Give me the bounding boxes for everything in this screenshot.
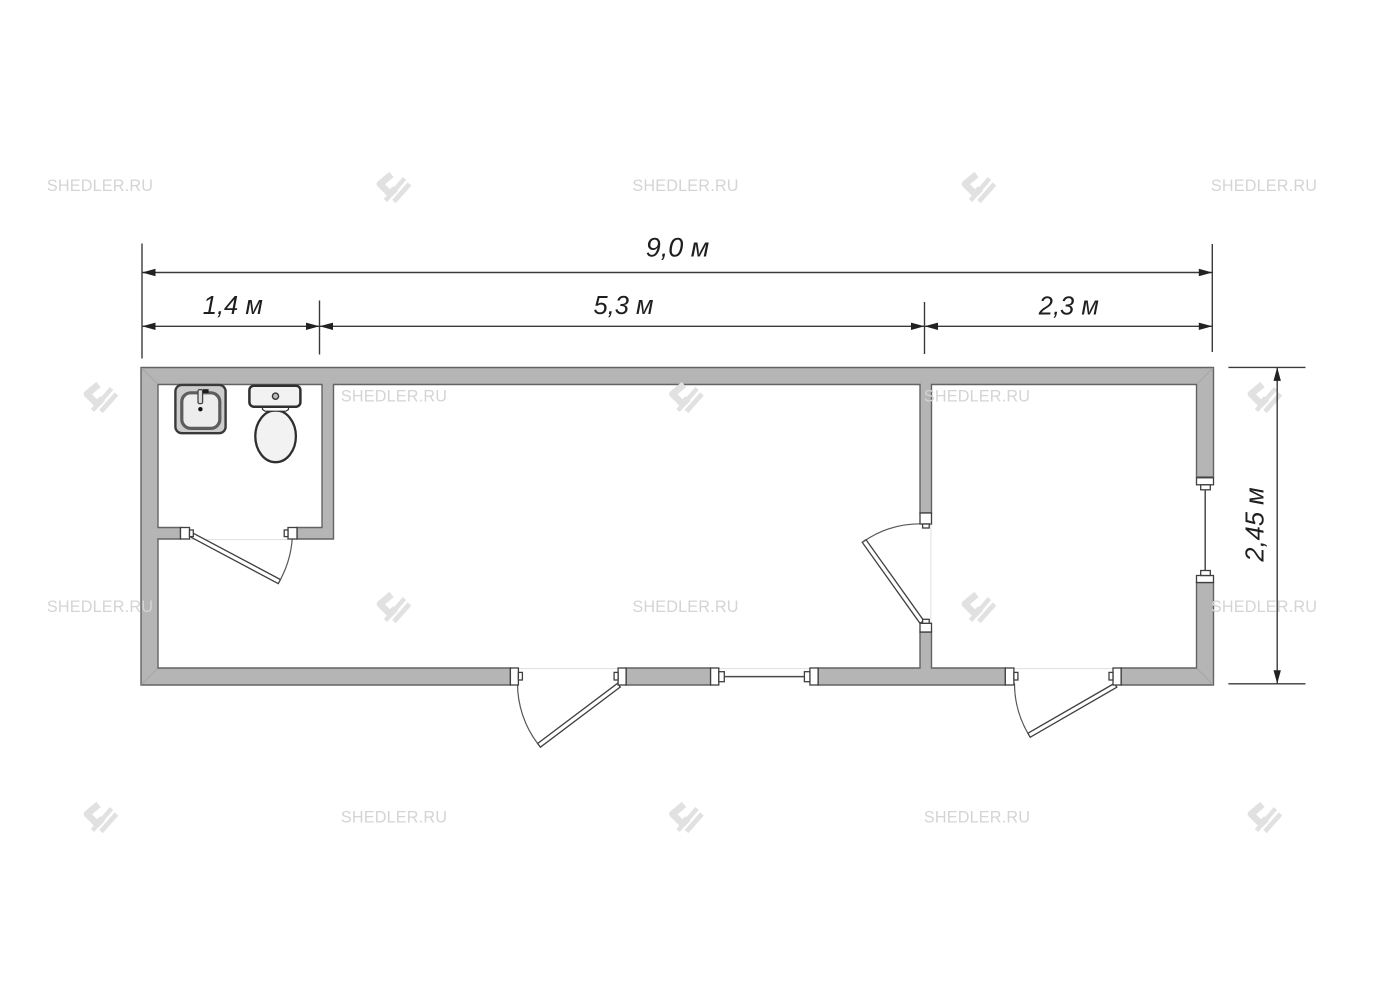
svg-text:SHEDLER.RU: SHEDLER.RU xyxy=(632,177,738,195)
svg-text:SHEDLER.RU: SHEDLER.RU xyxy=(924,809,1030,827)
svg-text:SHEDLER.RU: SHEDLER.RU xyxy=(47,598,153,616)
svg-text:2,45 м: 2,45 м xyxy=(1242,487,1270,562)
svg-text:9,0 м: 9,0 м xyxy=(646,233,710,263)
svg-text:SHEDLER.RU: SHEDLER.RU xyxy=(47,177,153,195)
svg-text:SHEDLER.RU: SHEDLER.RU xyxy=(341,388,447,406)
svg-text:1,4 м: 1,4 м xyxy=(203,292,263,320)
svg-text:2,3 м: 2,3 м xyxy=(1038,292,1099,320)
svg-text:SHEDLER.RU: SHEDLER.RU xyxy=(632,598,738,616)
svg-text:5,3 м: 5,3 м xyxy=(593,292,653,320)
svg-text:SHEDLER.RU: SHEDLER.RU xyxy=(1211,598,1317,616)
svg-text:SHEDLER.RU: SHEDLER.RU xyxy=(924,388,1030,406)
svg-text:SHEDLER.RU: SHEDLER.RU xyxy=(1211,177,1317,195)
svg-text:SHEDLER.RU: SHEDLER.RU xyxy=(341,809,447,827)
